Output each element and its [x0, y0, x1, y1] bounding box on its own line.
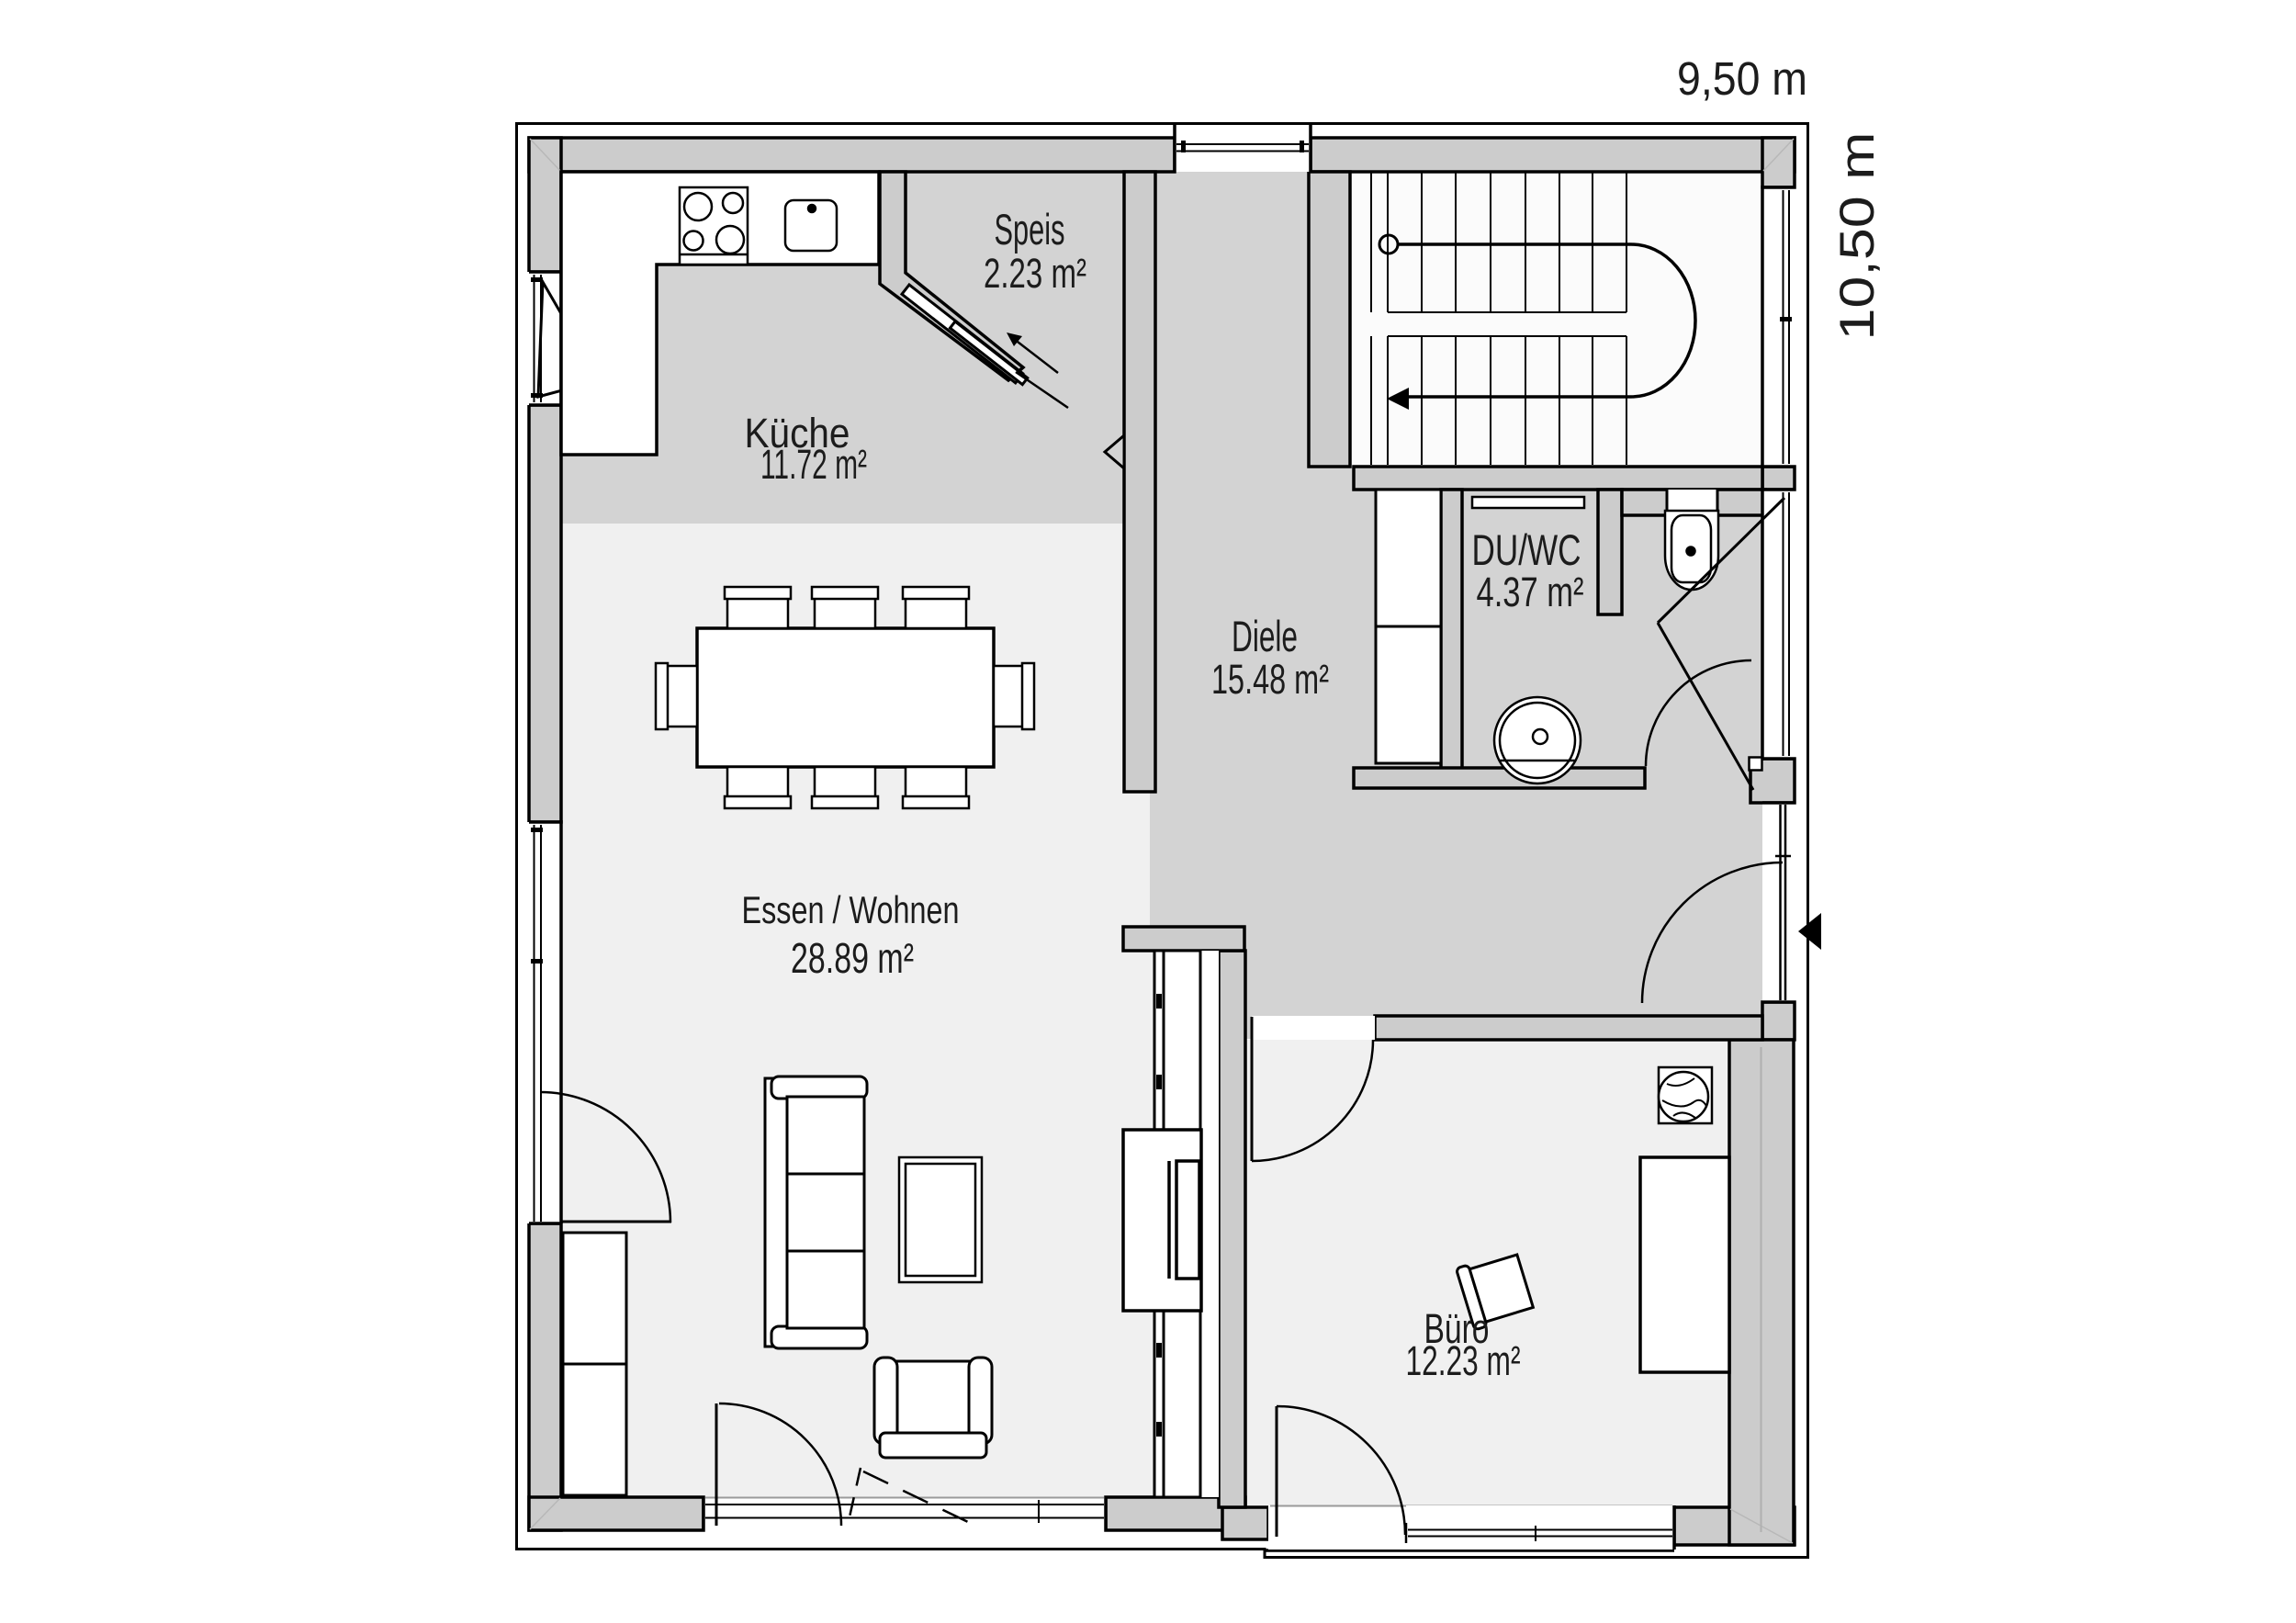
- svg-text:11.72 m²: 11.72 m²: [760, 441, 867, 488]
- svg-text:10,50 m: 10,50 m: [1830, 132, 1885, 341]
- svg-text:Diele: Diele: [1232, 612, 1298, 660]
- svg-text:15.48 m²: 15.48 m²: [1211, 656, 1329, 703]
- svg-text:28.89 m²: 28.89 m²: [791, 934, 914, 982]
- svg-text:9,50 m: 9,50 m: [1677, 52, 1807, 105]
- svg-text:4.37 m²: 4.37 m²: [1477, 569, 1584, 615]
- svg-text:Speis: Speis: [995, 205, 1065, 254]
- svg-text:DU/WC: DU/WC: [1472, 525, 1581, 574]
- svg-text:2.23 m²: 2.23 m²: [984, 250, 1086, 297]
- svg-text:12.23 m²: 12.23 m²: [1406, 1337, 1521, 1384]
- svg-text:Essen / Wohnen: Essen / Wohnen: [742, 888, 960, 931]
